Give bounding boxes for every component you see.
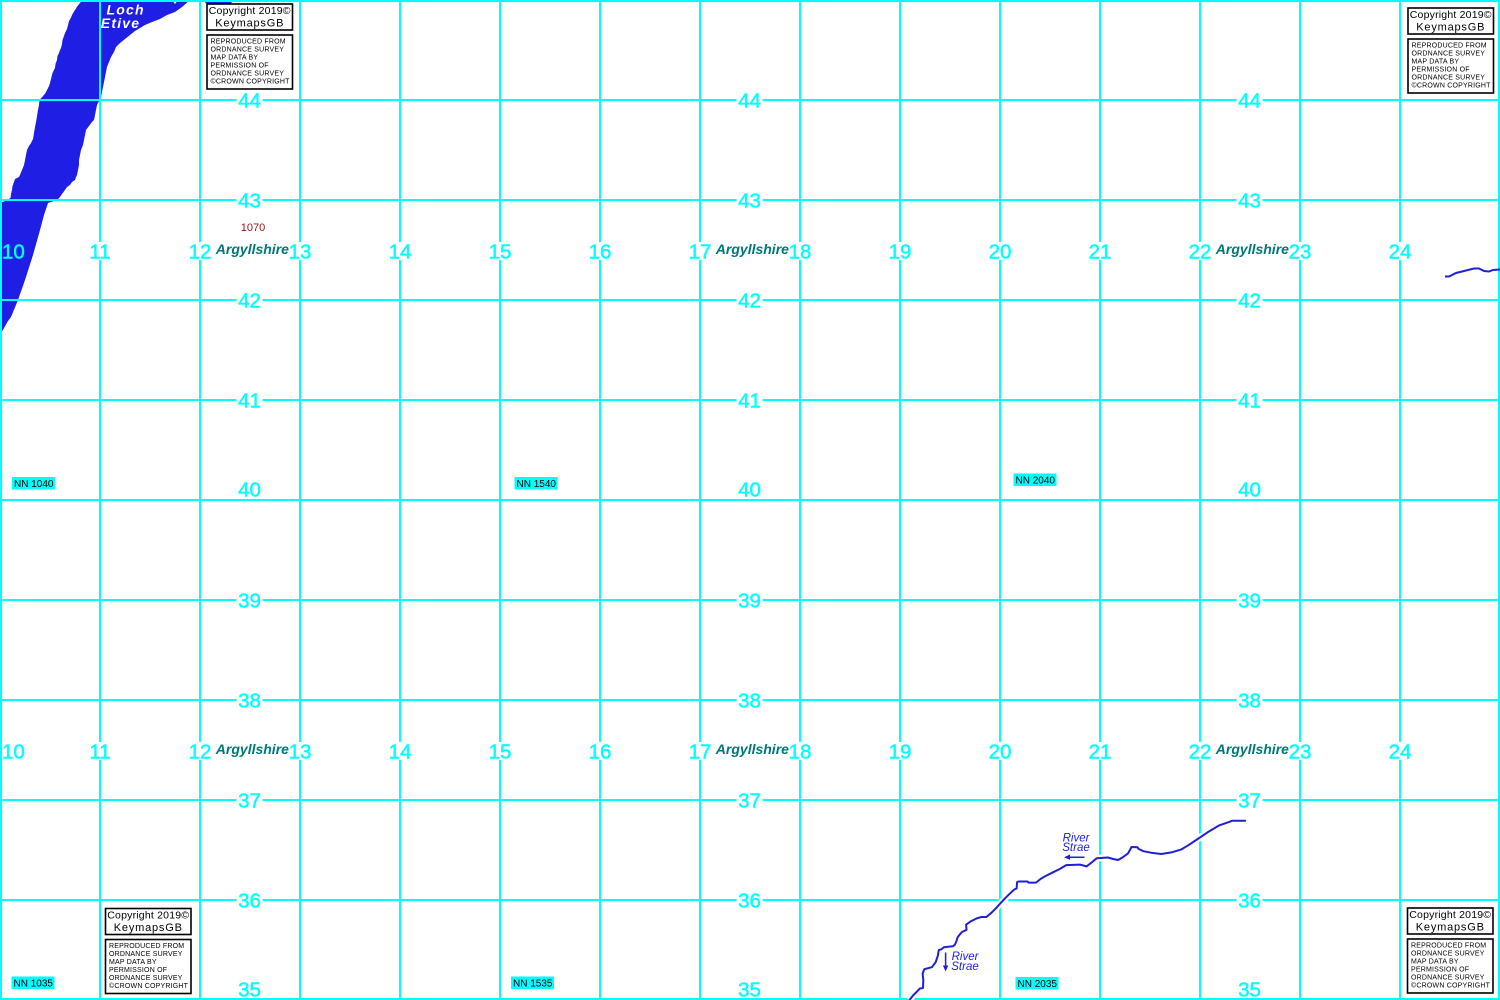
svg-text:22: 22 (1189, 740, 1212, 763)
svg-text:24: 24 (1389, 740, 1412, 763)
svg-text:©CROWN COPYRIGHT: ©CROWN COPYRIGHT (211, 78, 291, 86)
svg-text:REPRODUCED FROM: REPRODUCED FROM (211, 38, 286, 45)
svg-text:42: 42 (738, 289, 761, 312)
svg-text:41: 41 (738, 389, 761, 412)
svg-text:Copyright 2019©: Copyright 2019© (1410, 9, 1492, 21)
svg-text:ORDNANCE SURVEY: ORDNANCE SURVEY (109, 951, 183, 958)
svg-text:41: 41 (238, 389, 261, 412)
svg-text:REPRODUCED FROM: REPRODUCED FROM (1411, 942, 1486, 949)
svg-text:39: 39 (238, 589, 261, 612)
svg-text:Argyllshire: Argyllshire (715, 741, 789, 757)
svg-text:ORDNANCE SURVEY: ORDNANCE SURVEY (1412, 75, 1486, 82)
svg-text:39: 39 (1238, 589, 1261, 612)
svg-text:NN 2040: NN 2040 (1016, 476, 1056, 487)
svg-text:43: 43 (238, 189, 261, 212)
svg-text:40: 40 (1238, 479, 1261, 502)
svg-text:NN 1035: NN 1035 (14, 979, 54, 990)
svg-text:KeymapsGB: KeymapsGB (215, 18, 284, 30)
svg-text:KeymapsGB: KeymapsGB (1416, 922, 1485, 934)
svg-text:11: 11 (89, 740, 110, 763)
svg-text:22: 22 (1189, 240, 1212, 263)
svg-text:NN 2035: NN 2035 (1018, 979, 1058, 990)
svg-text:35: 35 (1238, 979, 1261, 1000)
svg-text:42: 42 (1238, 289, 1261, 312)
svg-text:12: 12 (189, 740, 212, 763)
svg-text:Strae: Strae (1062, 842, 1090, 854)
svg-text:19: 19 (889, 740, 912, 763)
svg-text:10: 10 (2, 740, 25, 763)
svg-text:18: 18 (789, 740, 812, 763)
svg-text:KeymapsGB: KeymapsGB (114, 922, 183, 934)
svg-text:PERMISSION OF: PERMISSION OF (211, 63, 269, 70)
svg-text:©CROWN COPYRIGHT: ©CROWN COPYRIGHT (1412, 82, 1492, 90)
svg-text:1070: 1070 (241, 222, 265, 234)
svg-text:KeymapsGB: KeymapsGB (1416, 22, 1485, 34)
svg-text:Etive: Etive (101, 15, 140, 31)
svg-text:43: 43 (738, 189, 761, 212)
svg-text:Argyllshire: Argyllshire (215, 241, 289, 257)
svg-text:MAP DATA BY: MAP DATA BY (211, 55, 259, 62)
svg-text:40: 40 (238, 479, 261, 502)
svg-text:16: 16 (589, 740, 612, 763)
svg-text:21: 21 (1089, 240, 1112, 263)
svg-text:37: 37 (238, 789, 261, 812)
svg-text:NN 1540: NN 1540 (517, 479, 557, 490)
svg-text:PERMISSION OF: PERMISSION OF (1412, 67, 1470, 74)
svg-text:40: 40 (738, 479, 761, 502)
svg-text:23: 23 (1289, 740, 1312, 763)
svg-text:36: 36 (238, 889, 261, 912)
svg-text:35: 35 (738, 979, 761, 1000)
svg-text:ORDNANCE SURVEY: ORDNANCE SURVEY (1411, 975, 1485, 982)
svg-text:18: 18 (789, 240, 812, 263)
svg-text:15: 15 (489, 240, 512, 263)
svg-text:PERMISSION OF: PERMISSION OF (109, 967, 167, 974)
svg-text:MAP DATA BY: MAP DATA BY (109, 959, 157, 966)
svg-text:17: 17 (689, 740, 712, 763)
svg-text:15: 15 (489, 740, 512, 763)
svg-text:NN 1535: NN 1535 (513, 979, 553, 990)
svg-text:14: 14 (389, 740, 412, 763)
svg-text:Copyright 2019©: Copyright 2019© (209, 5, 291, 17)
svg-text:Strae: Strae (951, 961, 979, 973)
svg-text:REPRODUCED FROM: REPRODUCED FROM (109, 943, 184, 950)
svg-text:23: 23 (1289, 240, 1312, 263)
svg-text:PERMISSION OF: PERMISSION OF (1411, 967, 1469, 974)
svg-text:17: 17 (689, 240, 712, 263)
svg-text:13: 13 (289, 240, 312, 263)
svg-text:42: 42 (238, 289, 261, 312)
svg-text:Argyllshire: Argyllshire (715, 241, 789, 257)
svg-text:Copyright 2019©: Copyright 2019© (1409, 909, 1491, 921)
svg-text:ORDNANCE SURVEY: ORDNANCE SURVEY (1411, 950, 1485, 957)
svg-text:38: 38 (238, 689, 261, 712)
svg-text:Argyllshire: Argyllshire (1215, 741, 1289, 757)
svg-text:ORDNANCE SURVEY: ORDNANCE SURVEY (1412, 50, 1486, 57)
svg-text:MAP DATA BY: MAP DATA BY (1411, 959, 1459, 966)
svg-text:Copyright 2019©: Copyright 2019© (107, 910, 189, 922)
svg-text:36: 36 (1238, 889, 1261, 912)
svg-text:44: 44 (1238, 89, 1261, 112)
svg-text:NN 1040: NN 1040 (14, 479, 54, 490)
svg-text:REPRODUCED FROM: REPRODUCED FROM (1412, 42, 1487, 49)
svg-text:Argyllshire: Argyllshire (1215, 241, 1289, 257)
svg-text:20: 20 (989, 740, 1012, 763)
svg-text:10: 10 (2, 240, 25, 263)
svg-text:14: 14 (389, 240, 412, 263)
svg-text:37: 37 (1238, 789, 1261, 812)
svg-text:20: 20 (989, 240, 1012, 263)
svg-text:13: 13 (289, 740, 312, 763)
svg-text:©CROWN COPYRIGHT: ©CROWN COPYRIGHT (1411, 982, 1491, 990)
svg-text:38: 38 (1238, 689, 1261, 712)
svg-text:37: 37 (738, 789, 761, 812)
svg-text:12: 12 (189, 240, 212, 263)
svg-text:36: 36 (738, 889, 761, 912)
svg-text:38: 38 (738, 689, 761, 712)
svg-text:ORDNANCE SURVEY: ORDNANCE SURVEY (211, 46, 285, 53)
svg-text:16: 16 (589, 240, 612, 263)
svg-text:43: 43 (1238, 189, 1261, 212)
svg-text:35: 35 (238, 979, 261, 1000)
svg-text:44: 44 (738, 89, 761, 112)
svg-text:ORDNANCE SURVEY: ORDNANCE SURVEY (109, 975, 183, 982)
svg-text:41: 41 (1238, 389, 1261, 412)
svg-text:ORDNANCE SURVEY: ORDNANCE SURVEY (211, 71, 285, 78)
svg-text:19: 19 (889, 240, 912, 263)
svg-text:MAP DATA BY: MAP DATA BY (1412, 59, 1460, 66)
svg-text:44: 44 (238, 89, 261, 112)
svg-text:©CROWN COPYRIGHT: ©CROWN COPYRIGHT (109, 982, 189, 990)
svg-text:24: 24 (1389, 240, 1412, 263)
svg-text:Argyllshire: Argyllshire (215, 741, 289, 757)
svg-text:11: 11 (89, 240, 110, 263)
svg-text:39: 39 (738, 589, 761, 612)
svg-text:21: 21 (1089, 740, 1112, 763)
